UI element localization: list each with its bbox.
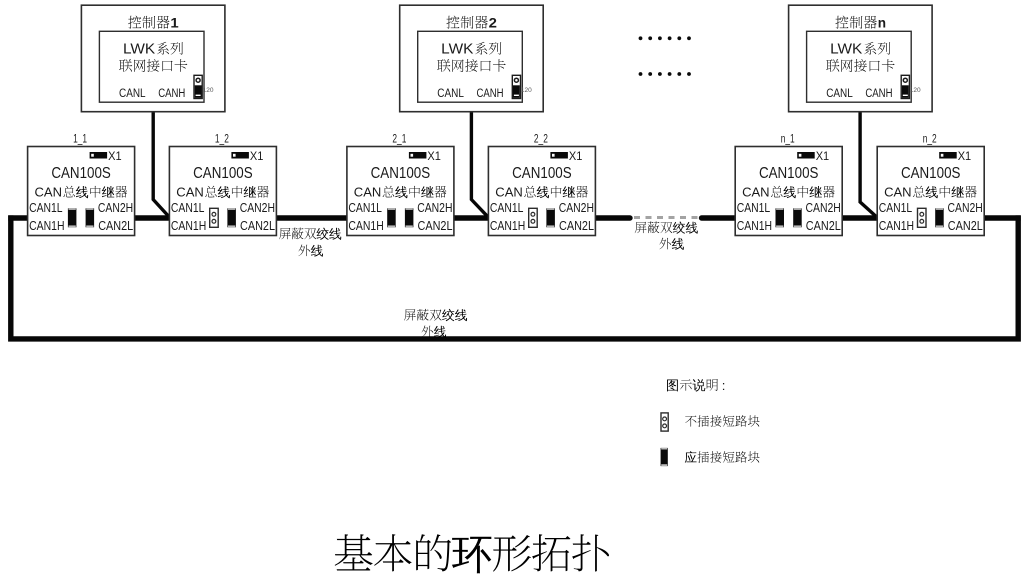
- svg-text:CAN: CAN: [884, 185, 912, 200]
- svg-text:CAN: CAN: [176, 185, 204, 200]
- svg-text:CAN2H: CAN2H: [559, 200, 594, 215]
- svg-text:LWK: LWK: [830, 41, 862, 58]
- svg-text:CAN2H: CAN2H: [240, 200, 275, 215]
- svg-text:CANL: CANL: [437, 86, 464, 100]
- svg-text:2_1: 2_1: [392, 134, 406, 146]
- svg-text:X1: X1: [108, 149, 122, 163]
- svg-text:CAN1H: CAN1H: [348, 218, 383, 233]
- svg-text:120: 120: [910, 87, 921, 94]
- svg-text:CAN1L: CAN1L: [737, 200, 771, 215]
- svg-text:CAN2L: CAN2L: [559, 218, 594, 233]
- svg-text:X1: X1: [250, 149, 264, 163]
- svg-text:CAN1L: CAN1L: [171, 200, 205, 215]
- svg-text:120: 120: [521, 87, 532, 94]
- svg-text:CAN100S: CAN100S: [759, 165, 819, 182]
- svg-text:2: 2: [489, 15, 498, 31]
- svg-text:1_1: 1_1: [73, 134, 87, 146]
- svg-text:CAN1H: CAN1H: [29, 218, 64, 233]
- svg-text:X1: X1: [958, 149, 972, 163]
- svg-text:CANL: CANL: [826, 86, 853, 100]
- svg-text:n_1: n_1: [781, 134, 795, 146]
- svg-text:CAN100S: CAN100S: [51, 165, 111, 182]
- svg-text:CAN2H: CAN2H: [948, 200, 983, 215]
- svg-text:X1: X1: [569, 149, 583, 163]
- svg-text:n_2: n_2: [923, 134, 937, 146]
- svg-text:120: 120: [203, 87, 214, 94]
- svg-text:n: n: [878, 15, 886, 31]
- svg-text:CAN2H: CAN2H: [417, 200, 452, 215]
- svg-text:CAN2L: CAN2L: [240, 218, 275, 233]
- svg-text:CAN1L: CAN1L: [348, 200, 382, 215]
- svg-text:CAN2L: CAN2L: [418, 218, 453, 233]
- svg-text:X1: X1: [427, 149, 441, 163]
- svg-text:LWK: LWK: [441, 41, 473, 58]
- svg-text:CAN: CAN: [35, 185, 63, 200]
- svg-text:CAN: CAN: [742, 185, 770, 200]
- svg-text:CAN100S: CAN100S: [371, 165, 431, 182]
- svg-text:CAN2L: CAN2L: [98, 218, 133, 233]
- svg-text:1_2: 1_2: [215, 134, 229, 146]
- svg-text:CAN1L: CAN1L: [490, 200, 524, 215]
- svg-text:CAN2L: CAN2L: [806, 218, 841, 233]
- svg-text:CANL: CANL: [119, 86, 146, 100]
- svg-text:1: 1: [170, 15, 179, 31]
- svg-text:CAN1H: CAN1H: [171, 218, 206, 233]
- svg-text:CAN1L: CAN1L: [879, 200, 913, 215]
- svg-text:CAN100S: CAN100S: [901, 165, 961, 182]
- svg-text:LWK: LWK: [123, 41, 155, 58]
- svg-text:2_2: 2_2: [534, 134, 548, 146]
- svg-text::: :: [722, 378, 726, 393]
- svg-text:CAN2L: CAN2L: [948, 218, 983, 233]
- svg-text:CANH: CANH: [477, 86, 504, 100]
- svg-text:X1: X1: [816, 149, 830, 163]
- svg-text:CAN: CAN: [354, 185, 382, 200]
- svg-text:CAN2H: CAN2H: [98, 200, 133, 215]
- svg-text:CANH: CANH: [865, 86, 892, 100]
- svg-text:CAN2H: CAN2H: [806, 200, 841, 215]
- svg-text:CAN100S: CAN100S: [512, 165, 572, 182]
- svg-text:CAN100S: CAN100S: [193, 165, 253, 182]
- svg-text:CAN: CAN: [495, 185, 523, 200]
- svg-text:CANH: CANH: [158, 86, 185, 100]
- svg-text:CAN1H: CAN1H: [737, 218, 772, 233]
- svg-text:CAN1L: CAN1L: [29, 200, 63, 215]
- svg-text:CAN1H: CAN1H: [490, 218, 525, 233]
- svg-text:CAN1H: CAN1H: [879, 218, 914, 233]
